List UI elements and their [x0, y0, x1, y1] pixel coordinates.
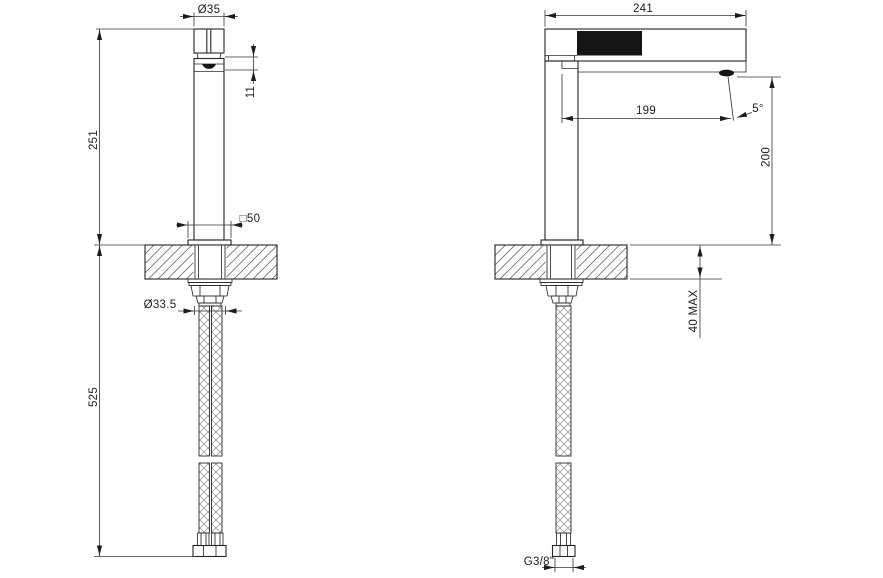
side-hose-upper: [556, 306, 571, 456]
front-locknut-lower: [196, 296, 224, 303]
front-locknut: [191, 286, 229, 297]
side-washer-2: [541, 283, 582, 286]
dim-deck-thickness: 40 MAX: [688, 245, 700, 338]
front-shank-diameter-text: Ø33.5: [144, 299, 177, 311]
front-body-column: [194, 59, 224, 241]
front-collar: [197, 53, 221, 59]
front-hose-right-upper: [212, 306, 223, 456]
side-hose-nut: [553, 546, 576, 557]
side-base-flange: [541, 240, 583, 245]
dim-spout-outlet-height: 11: [225, 44, 258, 98]
front-dimensions: Ø35 11 251 □50: [88, 4, 260, 557]
side-locknut: [546, 286, 578, 297]
side-spout-reach-text: 199: [636, 105, 656, 117]
side-aerator: [719, 70, 734, 77]
side-spout-underside: [562, 61, 746, 72]
front-handle-diameter-text: Ø35: [198, 4, 221, 16]
side-handle-lever: [577, 31, 642, 56]
dim-spout-reach: 199: [562, 74, 731, 123]
side-hose-lower: [556, 463, 571, 533]
front-handle-cylinder: [194, 29, 224, 53]
side-hose-thread-text: G3/8": [524, 556, 555, 568]
front-height-above-deck-text: 251: [88, 130, 100, 150]
front-hose-right-lower: [212, 463, 223, 533]
dim-base-square: □50: [176, 213, 260, 238]
dim-shank-diameter: Ø33.5: [144, 299, 242, 315]
front-base-flange: [188, 240, 231, 245]
faucet-dimension-drawing: Ø35 11 251 □50: [0, 0, 883, 578]
front-hose-collar: [199, 303, 221, 306]
side-body-column: [545, 61, 578, 240]
front-spout-outlet-height-text: 11: [245, 86, 257, 99]
front-hose-drop-text: 525: [88, 387, 100, 407]
front-base-square-text: □50: [240, 213, 261, 225]
dim-stream-angle: 5°: [737, 103, 764, 118]
front-aerator: [202, 64, 216, 69]
dim-hose-thread: G3/8": [524, 556, 586, 572]
dim-total-depth: 241: [545, 3, 746, 27]
dim-height-above-deck: 251: [88, 29, 194, 245]
front-view: [145, 29, 277, 557]
side-stream-angle-text: 5°: [752, 103, 764, 115]
front-washer-2: [189, 283, 231, 286]
front-hose-left-lower: [199, 463, 210, 533]
side-locknut-lower: [551, 296, 573, 303]
side-spout-height-text: 200: [761, 147, 773, 167]
front-hose-left-upper: [199, 306, 210, 456]
side-view: [495, 29, 746, 557]
dim-hose-drop: 525: [88, 245, 197, 557]
dim-handle-diameter: Ø35: [180, 4, 238, 27]
side-head-block: [545, 29, 746, 61]
front-hose-fitting-right: [212, 533, 224, 546]
front-hose-fitting-left: [198, 533, 210, 546]
side-total-depth-text: 241: [633, 3, 653, 15]
front-hose-nut: [193, 546, 226, 557]
side-water-stream-line: [728, 77, 734, 121]
side-hose-fitting: [557, 533, 571, 546]
technical-drawing-page: Ø35 11 251 □50: [0, 0, 883, 578]
side-hose-collar: [556, 303, 570, 306]
side-deck-thickness-text: 40 MAX: [688, 290, 700, 333]
